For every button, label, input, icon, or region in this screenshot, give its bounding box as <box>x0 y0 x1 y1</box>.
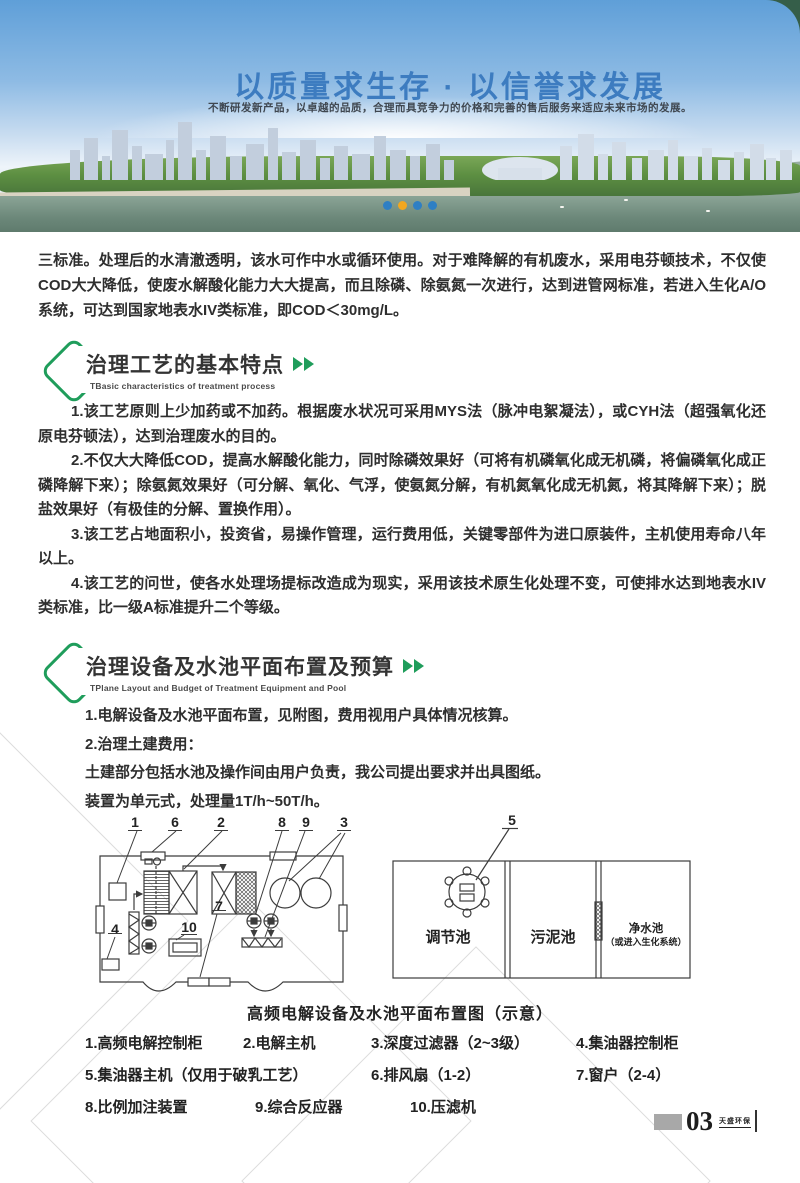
feature-item: 4.该工艺的问世，使各水处理场提标改造成为现实，采用该技术原生化处理不变，可使排… <box>38 572 766 621</box>
boat <box>560 206 564 208</box>
carousel-dots <box>383 201 437 210</box>
feature-item: 3.该工艺占地面积小，投资省，易操作管理，运行费用低，关键零部件为进口原装件，主… <box>38 523 766 572</box>
section1-subtitle-en: TBasic characteristics of treatment proc… <box>90 381 314 391</box>
play-arrow-icon <box>403 659 413 673</box>
pools-diagram: 5 调节池 污泥池 净水池 （或进入生化系统） <box>390 810 700 990</box>
callout-8: 8 <box>278 814 286 830</box>
boat <box>706 210 710 212</box>
carousel-dot-active[interactable] <box>398 201 407 210</box>
carousel-dot[interactable] <box>413 201 422 210</box>
legend-item: 10.压滤机 <box>410 1096 476 1117</box>
city-lake-photo: 以质量求生存 · 以信誉求发展 不断研发新产品，以卓越的品质，合理而具竞争力的价… <box>0 0 800 232</box>
equipment-room-diagram: 1 6 2 8 9 3 10 4 7 <box>88 810 358 1002</box>
callout-4: 4 <box>111 921 119 937</box>
pool-label-sludge: 污泥池 <box>530 928 575 946</box>
legend-item: 8.比例加注装置 <box>85 1096 255 1117</box>
feature-item: 2.不仅大大降低COD，提高水解酸化能力，同时除磷效果好（可将有机磷氧化成无机磷… <box>38 449 766 523</box>
budget-line: 土建部分包括水池及操作间由用户负责，我公司提出要求并出具图纸。 <box>38 759 766 788</box>
pool-label-clean-note: （或进入生化系统） <box>605 936 686 947</box>
carousel-dot[interactable] <box>428 201 437 210</box>
callout-3: 3 <box>340 814 348 830</box>
brand-name: 天盛环保 <box>719 1116 751 1128</box>
budget-line: 1.电解设备及水池平面布置，见附图，费用视用户具体情况核算。 <box>38 702 766 731</box>
budget-lines: 1.电解设备及水池平面布置，见附图，费用视用户具体情况核算。 2.治理土建费用：… <box>38 702 766 816</box>
callout-7: 7 <box>215 898 223 914</box>
legend-item: 4.集油器控制柜 <box>576 1032 679 1053</box>
section1-title: 治理工艺的基本特点 <box>86 349 284 379</box>
section2-title: 治理设备及水池平面布置及预算 <box>86 651 394 681</box>
brochure-page: 以质量求生存 · 以信誉求发展 不断研发新产品，以卓越的品质，合理而具竞争力的价… <box>0 0 800 1183</box>
legend-item: 3.深度过滤器（2~3级） <box>371 1032 576 1053</box>
carousel-dot[interactable] <box>383 201 392 210</box>
intro-paragraph: 三标准。处理后的水清澈透明，该水可作中水或循环使用。对于难降解的有机废水，采用电… <box>38 248 766 323</box>
feature-list: 1.该工艺原则上少加药或不加药。根据废水状况可采用MYS法（脉冲电絮凝法），或C… <box>38 400 766 621</box>
callout-2: 2 <box>217 814 225 830</box>
callout-9: 9 <box>302 814 310 830</box>
legend-item: 9.综合反应器 <box>255 1096 410 1117</box>
pool-label-clean: 净水池 <box>629 921 664 935</box>
footer-marker <box>654 1114 682 1130</box>
pool-label-regulating: 调节池 <box>425 928 470 946</box>
feature-item: 1.该工艺原则上少加药或不加药。根据废水状况可采用MYS法（脉冲电絮凝法），或C… <box>38 400 766 449</box>
legend-item: 7.窗户（2-4） <box>576 1064 670 1085</box>
section2-subtitle-en: TPlane Layout and Budget of Treatment Eq… <box>90 683 424 693</box>
play-arrow-icon <box>414 659 424 673</box>
play-arrow-icon <box>304 357 314 371</box>
callout-10: 10 <box>181 919 197 935</box>
legend-item: 5.集油器主机（仅用于破乳工艺） <box>85 1064 371 1085</box>
page-number: 03 <box>686 1108 713 1134</box>
callout-5: 5 <box>508 812 516 828</box>
callout-1: 1 <box>131 814 139 830</box>
diagram-legend: 1.高频电解控制柜 2.电解主机 3.深度过滤器（2~3级） 4.集油器控制柜 … <box>85 1032 745 1128</box>
legend-item: 1.高频电解控制柜 <box>85 1032 243 1053</box>
callout-6: 6 <box>171 814 179 830</box>
boat <box>624 199 628 201</box>
legend-item: 6.排风扇（1-2） <box>371 1064 576 1085</box>
page-footer: 03 天盛环保 <box>654 1108 757 1134</box>
budget-line: 2.治理土建费用： <box>38 731 766 760</box>
header-banner: 以质量求生存 · 以信誉求发展 不断研发新产品，以卓越的品质，合理而具竞争力的价… <box>0 0 800 232</box>
footer-divider <box>755 1110 757 1132</box>
legend-item: 2.电解主机 <box>243 1032 371 1053</box>
diagram-caption: 高频电解设备及水池平面布置图（示意） <box>0 1000 800 1024</box>
city-skyline <box>0 110 800 180</box>
play-arrow-icon <box>293 357 303 371</box>
